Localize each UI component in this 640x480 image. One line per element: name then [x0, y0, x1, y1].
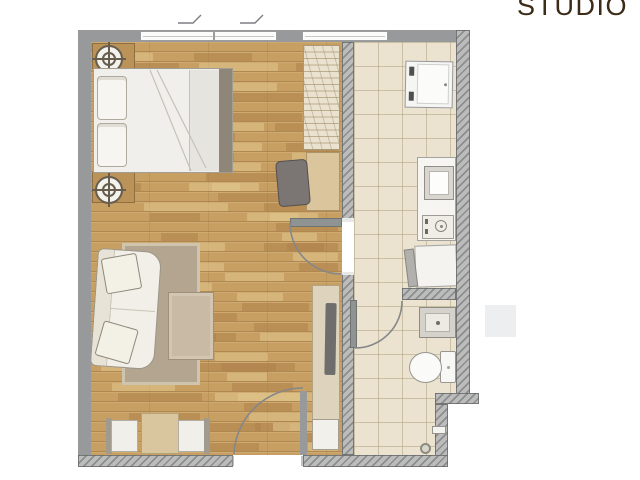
- burner-dot: [440, 225, 443, 228]
- wood-plank-streak: [198, 363, 276, 371]
- dining-chair: [111, 420, 138, 452]
- wood-plank-streak: [227, 373, 267, 381]
- sofa: [90, 248, 162, 370]
- wood-plank-streak: [254, 323, 308, 331]
- bed-blanket: [189, 70, 220, 171]
- wood-plank-streak: [282, 233, 317, 241]
- kitchen-counter: [417, 157, 456, 241]
- floor-drain: [420, 443, 431, 454]
- wood-plank-streak: [206, 173, 287, 181]
- dining-table: [141, 413, 179, 454]
- wall-divider-upper: [342, 42, 354, 222]
- wall-bottom-left: [78, 455, 233, 467]
- watermark-square: [485, 305, 516, 337]
- wall-bottom-right: [303, 455, 448, 467]
- wood-plank-streak: [242, 303, 309, 311]
- window-mullion: [213, 32, 215, 40]
- lamp-inner-ring: [102, 52, 116, 66]
- entry-jamb-stub: [300, 391, 307, 455]
- wall-bathroom: [402, 288, 456, 300]
- wardrobe: [303, 45, 340, 150]
- washbasin-drain-dot: [436, 321, 440, 325]
- wood-plank-streak: [264, 243, 324, 251]
- wood-plank-streak: [144, 203, 228, 211]
- lamp-icon-bottom: [95, 176, 123, 204]
- window-top-right: [302, 31, 388, 41]
- washbasin: [419, 307, 456, 338]
- refrigerator-hinge: [409, 92, 414, 101]
- window-glass-line: [143, 36, 274, 37]
- toilet-tank: [440, 351, 456, 383]
- wall-right: [456, 30, 470, 397]
- wall-left: [78, 30, 91, 467]
- wood-plank-streak: [244, 403, 292, 411]
- sofa-seat-split: [110, 308, 155, 312]
- wood-plank-streak: [249, 413, 318, 421]
- wood-plank-streak: [237, 293, 283, 301]
- interior-door-leaf: [290, 218, 342, 227]
- refrigerator-hinge: [409, 67, 414, 76]
- cooktop-knob: [425, 229, 428, 234]
- window-top-left: [140, 31, 277, 41]
- wall-notch: [435, 393, 479, 404]
- window-glass-line: [305, 36, 385, 37]
- bathroom-door-leaf: [350, 300, 357, 348]
- wood-plank-streak: [189, 183, 240, 191]
- wood-plank-streak: [215, 393, 301, 401]
- wood-plank-streak: [194, 53, 252, 61]
- refrigerator-handle: [444, 83, 447, 86]
- toilet-bowl: [409, 352, 442, 383]
- window-tick-mark: [240, 15, 263, 23]
- refrigerator: [405, 61, 454, 109]
- pillow: [97, 123, 127, 167]
- shower-mixer: [432, 426, 446, 434]
- coffee-table: [168, 292, 214, 360]
- wood-plank-streak: [161, 233, 198, 241]
- wood-plank-streak: [150, 213, 200, 221]
- window-tick-mark: [178, 15, 201, 23]
- wood-plank-streak: [215, 353, 268, 361]
- floor-plan-canvas: STUDIO: [0, 0, 640, 480]
- toilet-flush-dot: [447, 366, 450, 369]
- wood-plank-streak: [228, 113, 302, 121]
- cooktop-knob: [425, 219, 428, 224]
- dining-chair: [178, 420, 205, 452]
- tv: [324, 303, 336, 375]
- wood-plank-streak: [225, 273, 284, 281]
- sofa-pillow: [101, 253, 143, 295]
- entry-jamb-line: [233, 456, 302, 466]
- wood-plank-streak: [299, 263, 338, 271]
- double-bed: [93, 68, 233, 173]
- wood-plank-streak: [118, 393, 202, 401]
- desk-chair: [275, 159, 311, 208]
- pillow: [97, 76, 127, 120]
- bed-footboard: [219, 69, 232, 172]
- wood-plank-streak: [293, 253, 338, 261]
- dining-chair-frame: [204, 418, 210, 454]
- cooktop: [422, 215, 454, 239]
- page-title: STUDIO: [517, 0, 628, 22]
- kitchen-sink: [424, 166, 454, 200]
- wall-end-cap: [342, 272, 354, 275]
- base-cabinet: [414, 244, 457, 287]
- lamp-inner-ring: [102, 183, 116, 197]
- wood-plank-streak: [218, 193, 286, 201]
- desk: [306, 152, 340, 211]
- wall-end-cap: [342, 218, 354, 222]
- sink-basin: [429, 171, 449, 195]
- wood-plank-streak: [232, 383, 293, 391]
- shoe-cabinet: [312, 419, 339, 450]
